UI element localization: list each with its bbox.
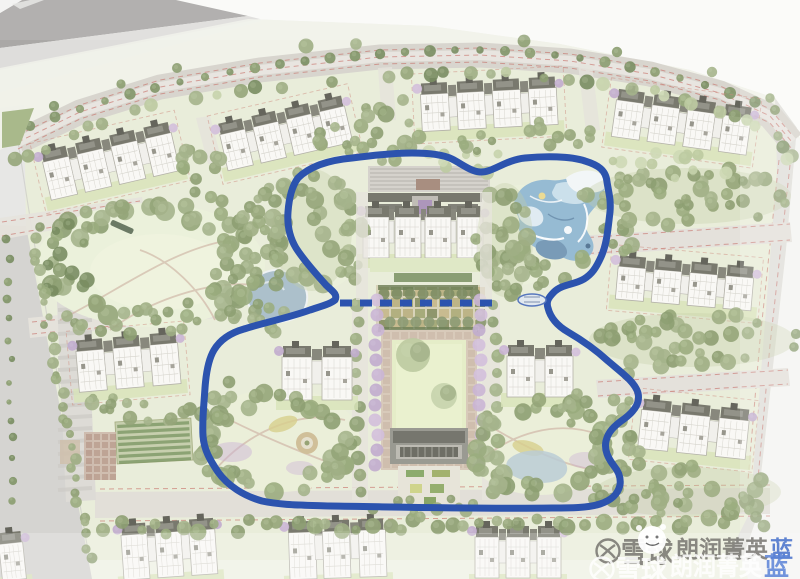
svg-text:朗润菁英: 朗润菁英: [670, 552, 763, 579]
svg-text:蓝: 蓝: [764, 553, 789, 579]
svg-text:雪球: 雪球: [615, 555, 668, 579]
